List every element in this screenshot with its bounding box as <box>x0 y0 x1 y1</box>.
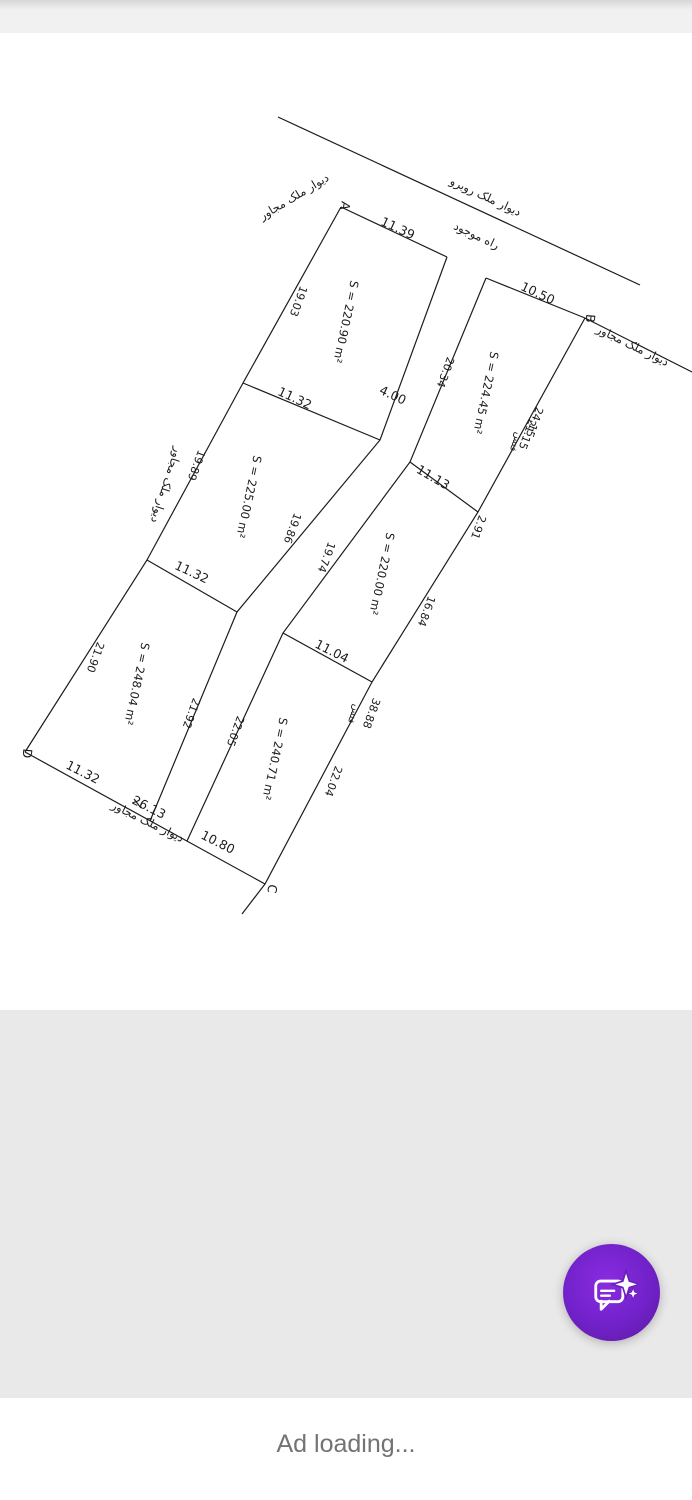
adjacent-wall-left-label: دیوار ملک مجاور <box>147 444 186 525</box>
corner-c: C <box>264 883 280 894</box>
adjacent-wall-top-label: دیوار ملک مجاور <box>256 170 332 224</box>
area-parcel-3: S = 225.00 m² <box>233 454 264 539</box>
dim-right-3: 16.84 <box>415 594 438 628</box>
dim-top-a: 11.39 <box>379 214 418 243</box>
divider-left-1 <box>243 383 380 440</box>
adjacent-wall-right-label: دیوار ملک مجاور <box>593 321 671 369</box>
dim-right-2: 2.91 <box>468 513 489 540</box>
ad-placeholder-panel <box>0 1010 692 1398</box>
sparkle-small-icon <box>628 1289 637 1298</box>
corner-d: D <box>20 748 36 759</box>
app-screen: A B C D دیوار ملک روبرو راه موجود دیوار … <box>0 0 692 1500</box>
dim-bottom-1: 11.32 <box>64 757 103 787</box>
fence-lower-label: فنس <box>345 703 362 725</box>
dim-bottom-2: 10.80 <box>199 827 238 857</box>
dim-mid-left-2: 11.32 <box>173 558 212 587</box>
dim-right-4: 38.88 <box>360 696 383 730</box>
dim-top-b: 10.50 <box>519 279 558 308</box>
corner-letters: A B C D <box>20 200 599 894</box>
dim-road-right-2: 22.05 <box>224 714 247 748</box>
left-boundary <box>25 207 341 752</box>
status-bar <box>0 0 692 33</box>
dim-mid-right-1: 11.13 <box>414 462 453 493</box>
road-left-edge <box>150 257 447 821</box>
dim-road-left-1: 19.86 <box>281 511 304 545</box>
area-parcel-5: S = 248.04 m² <box>121 641 152 726</box>
dimension-labels: 11.39 10.50 19.03 19.89 21.90 20.34 4.00… <box>64 214 558 857</box>
existing-road-label: راه موجود <box>451 219 501 253</box>
ad-loading-text: Ad loading... <box>0 1430 692 1459</box>
dim-road-left-2: 21.92 <box>180 696 203 730</box>
ai-chat-fab[interactable] <box>563 1244 660 1341</box>
dim-left-2: 19.89 <box>185 448 208 482</box>
dim-mid-left-1: 11.32 <box>276 384 315 413</box>
area-parcel-2: S = 224.45 m² <box>470 350 501 435</box>
chat-sparkle-icon <box>586 1267 638 1319</box>
land-survey-drawing[interactable]: A B C D دیوار ملک روبرو راه موجود دیوار … <box>0 33 692 1010</box>
dim-left-1: 19.03 <box>287 284 310 318</box>
road-line <box>278 117 640 285</box>
dim-road-right-0: 20.34 <box>434 355 457 389</box>
area-parcel-6: S = 240.71 m² <box>259 716 290 801</box>
area-parcel-4: S = 220.00 m² <box>366 531 397 616</box>
area-parcel-1: S = 220.90 m² <box>330 279 361 364</box>
survey-sketch-svg: A B C D دیوار ملک روبرو راه موجود دیوار … <box>0 33 692 1010</box>
dim-left-3: 21.90 <box>84 640 107 674</box>
dim-road-right-1: 19.74 <box>315 540 338 574</box>
dim-mid-right-2: 11.04 <box>313 636 352 666</box>
corner-b: B <box>583 313 599 323</box>
wall-labels: دیوار ملک روبرو راه موجود دیوار ملک مجاو… <box>108 170 671 846</box>
boundary-lines <box>25 117 692 914</box>
